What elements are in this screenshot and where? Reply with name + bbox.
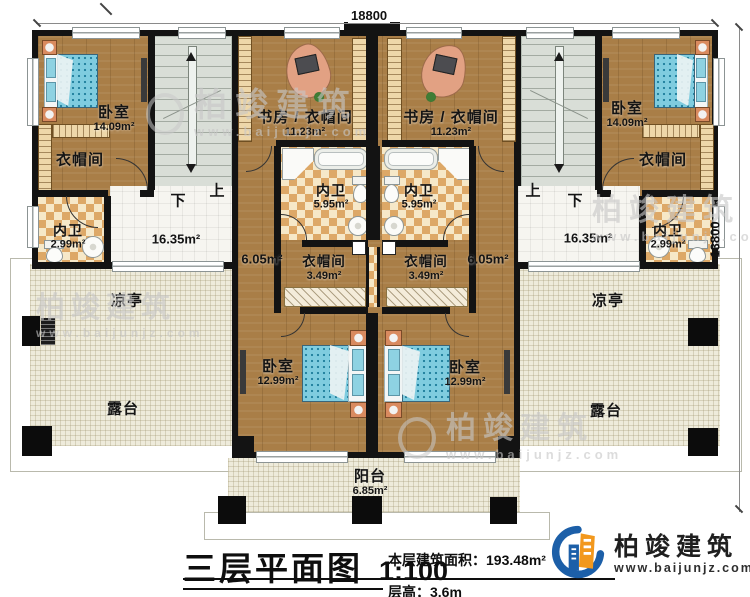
- wall-niche: [352, 241, 366, 255]
- room-label-bedroom-tr: 卧室 14.09m²: [607, 100, 648, 130]
- stair-label-down-right: 下: [567, 192, 582, 209]
- nightstand: [42, 40, 57, 55]
- room-label-terrace-left: 露台: [107, 400, 139, 417]
- wall: [300, 307, 368, 314]
- dimension-right-label: 13800: [708, 218, 723, 260]
- nightstand: [350, 330, 367, 346]
- floor-plan: 卧室 14.09m² 衣帽间 内卫 2.99m² 16.35m² 下 上 书房 …: [0, 0, 750, 597]
- stair-label-down-left: 下: [170, 192, 185, 209]
- company-url: www.baijunjz.com: [614, 561, 750, 575]
- window: [256, 451, 348, 463]
- wall: [382, 307, 450, 314]
- potted-plant: [314, 92, 324, 102]
- railing-grill: [41, 318, 55, 345]
- terrace-left-floor: [30, 264, 232, 446]
- pillow: [352, 374, 364, 396]
- room-label-pavilion-left: 凉亭: [111, 292, 143, 309]
- room-label-bedroom-br: 卧室 12.99m²: [445, 359, 486, 389]
- dimension-line-right: [739, 28, 740, 512]
- company-logo: 柏竣建筑 www.baijunjz.com: [550, 524, 750, 585]
- wall-niche: [382, 241, 396, 255]
- wardrobe-closet-tl: [38, 124, 52, 196]
- nightstand: [695, 40, 710, 55]
- wardrobe-study-left-outer: [238, 36, 252, 142]
- room-label-balcony: 阳台 6.85m²: [353, 468, 388, 498]
- stair-arrow-up: [554, 52, 564, 61]
- leader-mark: [100, 3, 113, 16]
- pillow: [46, 58, 56, 78]
- window: [72, 27, 140, 39]
- wardrobe-closet-tr: [700, 124, 714, 196]
- window: [27, 58, 39, 126]
- column: [688, 428, 718, 456]
- window: [178, 27, 226, 39]
- pillow: [696, 58, 706, 78]
- window: [27, 206, 39, 248]
- tv-panel: [141, 58, 147, 102]
- company-name: 柏竣建筑: [614, 534, 750, 562]
- window: [713, 58, 725, 126]
- nightstand: [350, 402, 367, 418]
- room-label-hall-right: 16.35m²: [564, 232, 612, 247]
- column: [22, 316, 40, 346]
- sliding-door: [528, 261, 640, 272]
- tv-panel: [240, 350, 246, 394]
- floor-height-note: 层高：3.6m: [388, 582, 462, 597]
- sink: [348, 216, 368, 236]
- stair-arrow-down: [554, 164, 564, 173]
- company-logo-icon: [550, 524, 606, 585]
- room-label-closet-inner-right: 衣帽间 3.49m²: [404, 254, 448, 282]
- room-label-hall-left: 16.35m²: [152, 233, 200, 248]
- wall: [366, 30, 378, 146]
- wall: [274, 146, 281, 313]
- window: [404, 451, 496, 463]
- room-label-closet-inner-left: 衣帽间 3.49m²: [302, 254, 346, 282]
- room-label-bath-inner-left: 内卫 5.95m²: [314, 183, 349, 212]
- stair-label-up-right: 上: [525, 182, 540, 199]
- title-rule-2: [183, 588, 383, 590]
- window: [284, 27, 340, 39]
- column: [688, 318, 718, 346]
- sliding-door: [112, 261, 224, 272]
- wall: [366, 146, 380, 240]
- room-label-bath-inner-right: 内卫 5.95m²: [402, 183, 437, 212]
- wardrobe-bedroom-tr: [642, 124, 700, 138]
- wall: [366, 247, 369, 307]
- toilet: [384, 184, 399, 203]
- wall: [639, 196, 646, 262]
- room-label-bath-side-right: 内卫 2.99m²: [651, 223, 686, 252]
- wall: [595, 36, 602, 190]
- wardrobe-study-left-inner: [352, 38, 367, 142]
- room-label-study-left: 书房 / 衣帽间 11.23m²: [257, 109, 353, 139]
- nightstand: [385, 402, 402, 418]
- wall: [232, 436, 254, 458]
- wall: [469, 146, 476, 313]
- room-label-bedroom-bl: 卧室 12.99m²: [258, 358, 299, 388]
- wardrobe-closet-inner-left: [284, 287, 366, 307]
- potted-plant: [426, 92, 436, 102]
- nightstand: [695, 107, 710, 122]
- pillow: [696, 82, 706, 102]
- column: [352, 496, 382, 524]
- wall: [498, 436, 520, 458]
- pillow: [388, 374, 400, 396]
- floor-area-note: 本层建筑面积：193.48m²: [388, 550, 546, 570]
- stair-arrow-up: [186, 52, 196, 61]
- column: [22, 426, 52, 456]
- toilet: [689, 247, 706, 263]
- dimension-line-top: [36, 23, 716, 24]
- nightstand: [42, 107, 57, 122]
- room-label-terrace-right: 露台: [590, 402, 622, 419]
- wall: [597, 190, 611, 197]
- wall: [148, 36, 155, 190]
- wall: [276, 140, 368, 147]
- tv-panel: [603, 58, 609, 102]
- pillow: [46, 82, 56, 102]
- room-label-pavilion-right: 凉亭: [592, 292, 624, 309]
- pillow: [352, 349, 364, 371]
- column: [218, 496, 246, 524]
- tv-panel: [504, 350, 510, 394]
- stair-label-up-left: 上: [209, 182, 224, 199]
- room-label-corridor-right: 6.05m²: [467, 253, 508, 268]
- wardrobe-study-right-inner: [387, 38, 402, 142]
- bathtub: [384, 148, 438, 170]
- dimension-top-label: 18800: [348, 8, 390, 23]
- wall: [140, 190, 154, 197]
- wall: [382, 140, 474, 147]
- stair-arrow-down: [186, 164, 196, 173]
- wardrobe-closet-inner-right: [386, 287, 468, 307]
- bathtub: [314, 148, 368, 170]
- plan-title: 三层平面图: [183, 542, 363, 590]
- wall: [377, 247, 380, 307]
- room-label-corridor-left: 6.05m²: [241, 253, 282, 268]
- wall: [366, 313, 378, 456]
- room-label-bath-side-left: 内卫 2.99m²: [51, 223, 86, 252]
- wall: [104, 196, 111, 262]
- room-label-closet-tl: 衣帽间: [56, 151, 104, 168]
- room-label-bedroom-tl: 卧室 14.09m²: [94, 104, 135, 134]
- room-label-study-right: 书房 / 衣帽间 11.23m²: [403, 109, 499, 139]
- wardrobe-study-right-outer: [502, 36, 516, 142]
- room-label-closet-tr: 衣帽间: [639, 151, 687, 168]
- nightstand: [385, 330, 402, 346]
- window: [406, 27, 462, 39]
- window: [612, 27, 680, 39]
- window: [526, 27, 574, 39]
- sink: [384, 216, 404, 236]
- pillow: [388, 349, 400, 371]
- column: [490, 497, 517, 524]
